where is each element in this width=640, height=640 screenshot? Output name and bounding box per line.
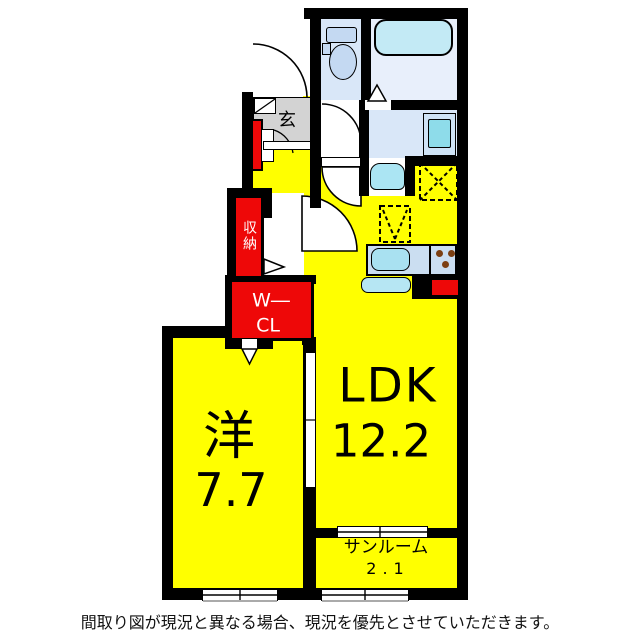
shoe-cabinet-diagonal — [255, 99, 275, 113]
ldk-label: LDK — [338, 363, 437, 410]
sunroom-label: サンルーム — [344, 540, 429, 557]
western-room-label: 洋 — [203, 411, 255, 463]
disclaimer-text: 間取り図が現況と異なる場合、現況を優先とさせていただきます。 — [81, 609, 559, 633]
wcl-label-line2: CL — [256, 317, 280, 336]
detail-overlay-layer — [0, 0, 640, 640]
ldk-size: 12.2 — [331, 419, 431, 464]
floorplan-canvas: LDK 12.2 洋 7.7 サンルーム 2.1 玄 収納 W― CL 間取り図… — [0, 0, 640, 640]
storage-label: 収納 — [242, 220, 256, 252]
sunroom-size: 2.1 — [366, 561, 409, 577]
western-room-size: 7.7 — [194, 467, 267, 513]
bath-door-triangle — [368, 85, 386, 101]
storage-door-triangle — [264, 259, 284, 274]
wcl-label-line1: W― — [252, 292, 290, 311]
entrance-label: 玄 — [278, 112, 296, 130]
wcl-door-triangle — [242, 349, 257, 364]
